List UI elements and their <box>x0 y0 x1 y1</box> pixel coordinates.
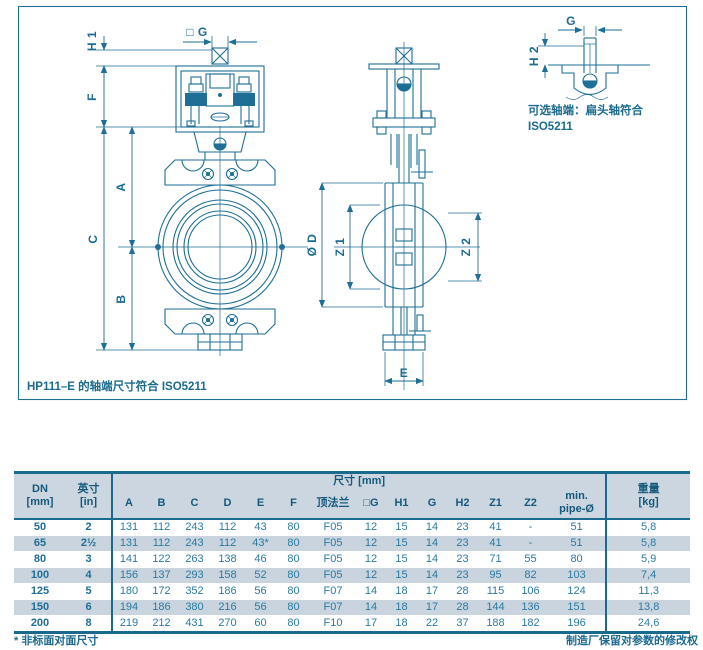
table-cell: F05 <box>310 535 356 551</box>
table-row: 10041561372931585280F051215142395821037,… <box>14 567 690 583</box>
table-cell: 158 <box>211 567 244 583</box>
table-cell: 24,6 <box>606 615 690 632</box>
table-cell: 124 <box>548 583 606 599</box>
table-cell: 293 <box>178 567 211 583</box>
column-header: H1 <box>386 489 417 518</box>
inset-note-line1: 可选轴端：扁头轴符合 <box>528 103 643 117</box>
footnote-right: 制造厂保留对参数的修改权 <box>566 632 698 648</box>
table-cell: - <box>513 535 548 551</box>
table-cell: 14 <box>356 599 386 615</box>
table-cell: 3 <box>66 551 112 567</box>
table-cell: 15 <box>386 567 417 583</box>
table-cell: 194 <box>112 599 145 615</box>
table-cell: 17 <box>417 599 447 615</box>
table-cell: 186 <box>211 583 244 599</box>
table-cell: 151 <box>548 599 606 615</box>
table-cell: F05 <box>310 551 356 567</box>
table-cell: F10 <box>310 615 356 632</box>
dim-label-z2: Z 2 <box>459 238 473 257</box>
table-cell: 12 <box>356 519 386 536</box>
table-cell: 188 <box>478 615 513 632</box>
table-cell: 182 <box>513 615 548 632</box>
table-cell: 115 <box>478 583 513 599</box>
table-cell: 2 <box>66 519 112 536</box>
column-header: D <box>211 489 244 518</box>
table-cell: 131 <box>112 519 145 536</box>
table-cell: 80 <box>277 599 310 615</box>
table-cell: F05 <box>310 519 356 536</box>
table-cell: 22 <box>417 615 447 632</box>
header-inch: 英寸 [in] <box>66 473 112 519</box>
table-cell: 80 <box>277 583 310 599</box>
table-cell: 12 <box>356 551 386 567</box>
column-header: 顶法兰 <box>310 489 356 518</box>
column-header: Z1 <box>478 489 513 518</box>
table-cell: 55 <box>513 551 548 567</box>
dim-label-h2: H 2 <box>527 46 541 66</box>
table-cell: 71 <box>478 551 513 567</box>
table-cell: 122 <box>145 551 178 567</box>
table-cell: 112 <box>145 535 178 551</box>
table-cell: 2½ <box>66 535 112 551</box>
table-cell: 17 <box>356 615 386 632</box>
table-cell: 82 <box>513 567 548 583</box>
table-cell: 37 <box>447 615 478 632</box>
table-cell: 180 <box>112 583 145 599</box>
dim-label-z1: Z 1 <box>333 238 347 257</box>
footnotes: * 非标面对面尺寸 制造厂保留对参数的修改权 <box>14 632 698 648</box>
table-cell: 186 <box>145 599 178 615</box>
dim-label-b: B <box>114 294 128 303</box>
column-header: F <box>277 489 310 518</box>
table-cell: 380 <box>178 599 211 615</box>
table-cell: 80 <box>277 567 310 583</box>
table-cell: 17 <box>417 583 447 599</box>
table-cell: 23 <box>447 535 478 551</box>
table-cell: 52 <box>244 567 277 583</box>
frame-note: HP111–E 的轴端尺寸符合 ISO5211 <box>27 379 207 393</box>
table-cell: 4 <box>66 567 112 583</box>
header-weight: 重量 [kg] <box>606 473 690 519</box>
bolt-icon <box>227 169 238 180</box>
table-cell: 56 <box>244 599 277 615</box>
footnote-left: * 非标面对面尺寸 <box>14 632 98 648</box>
table-cell: 18 <box>386 583 417 599</box>
bolt-icon <box>203 315 214 326</box>
table-cell: 144 <box>478 599 513 615</box>
table-cell: 270 <box>211 615 244 632</box>
shaft-end-inset: G H 2 可选轴端：扁头轴符合 ISO5211 <box>527 14 650 133</box>
table-row: 20082192124312706080F1017182237188182196… <box>14 615 690 632</box>
inset-note-line2: ISO5211 <box>528 121 573 133</box>
column-header: A <box>112 489 145 518</box>
table-cell: F07 <box>310 599 356 615</box>
table-cell: 14 <box>417 567 447 583</box>
table-cell: 23 <box>447 519 478 536</box>
table-cell: 50 <box>14 519 66 536</box>
table-cell: 141 <box>112 551 145 567</box>
table-cell: - <box>513 519 548 536</box>
table-cell: 219 <box>112 615 145 632</box>
screw-head-icon <box>583 74 597 88</box>
drawing-svg: H 1 F A C B □ G <box>0 0 703 466</box>
dim-label-dia-d: Ø D <box>305 234 319 257</box>
table-cell: 5,9 <box>606 551 690 567</box>
table-cell: 14 <box>417 519 447 536</box>
table-row: 652½13111224311243*80F051215142341-515,8 <box>14 535 690 551</box>
table-cell: 80 <box>14 551 66 567</box>
table-cell: 216 <box>211 599 244 615</box>
header-size-group: 尺寸 [mm] <box>112 473 606 490</box>
table-cell: 23 <box>447 567 478 583</box>
table-cell: 14 <box>356 583 386 599</box>
table-cell: F07 <box>310 583 356 599</box>
column-header: min. pipe-Ø <box>548 489 606 518</box>
table-cell: 212 <box>145 615 178 632</box>
column-header: G <box>417 489 447 518</box>
bolt-icon <box>227 315 238 326</box>
valve-technical-drawing: H 1 F A C B □ G <box>0 0 703 466</box>
table-cell: 263 <box>178 551 211 567</box>
column-header: □G <box>356 489 386 518</box>
table-cell: 138 <box>211 551 244 567</box>
table-cell: 8 <box>66 615 112 632</box>
column-header-row: ABCDEF顶法兰□GH1GH2Z1Z2min. pipe-Ø <box>14 489 690 518</box>
table-cell: 112 <box>211 519 244 536</box>
dim-label-g: G <box>566 14 576 28</box>
table-body: 5021311122431124380F051215142341-515,865… <box>14 519 690 633</box>
dim-label-square-g: □ G <box>186 25 207 39</box>
table-row: 15061941863802165680F0714181728144136151… <box>14 599 690 615</box>
table-cell: 80 <box>277 519 310 536</box>
table-cell: 60 <box>244 615 277 632</box>
side-view <box>334 42 480 390</box>
column-header: H2 <box>447 489 478 518</box>
table-cell: 15 <box>386 535 417 551</box>
table-cell: 136 <box>513 599 548 615</box>
bolt-icon <box>203 169 214 180</box>
table-row: 8031411222631384680F05121514237155805,9 <box>14 551 690 567</box>
table-cell: 14 <box>417 551 447 567</box>
table-cell: 28 <box>447 599 478 615</box>
table-cell: 5,8 <box>606 535 690 551</box>
table-cell: 41 <box>478 535 513 551</box>
table-cell: 14 <box>417 535 447 551</box>
table-cell: 5 <box>66 583 112 599</box>
table-cell: 80 <box>277 615 310 632</box>
table-cell: F05 <box>310 567 356 583</box>
dim-label-f: F <box>85 93 99 101</box>
table-cell: 243 <box>178 519 211 536</box>
dimension-table-section: DN [mm] 英寸 [in] 尺寸 [mm] 重量 [kg] ABCDEF顶法… <box>14 471 690 634</box>
table-cell: 28 <box>447 583 478 599</box>
table-cell: 18 <box>386 599 417 615</box>
table-cell: 95 <box>478 567 513 583</box>
table-cell: 43* <box>244 535 277 551</box>
table-cell: 11,3 <box>606 583 690 599</box>
table-cell: 15 <box>386 551 417 567</box>
table-row: 5021311122431124380F051215142341-515,8 <box>14 519 690 536</box>
table-cell: 352 <box>178 583 211 599</box>
table-cell: 137 <box>145 567 178 583</box>
table-cell: 15 <box>386 519 417 536</box>
table-cell: 106 <box>513 583 548 599</box>
column-header: Z2 <box>513 489 548 518</box>
table-cell: 156 <box>112 567 145 583</box>
table-cell: 13,8 <box>606 599 690 615</box>
table-cell: 80 <box>548 551 606 567</box>
dim-label-a: A <box>114 182 128 191</box>
table-cell: 46 <box>244 551 277 567</box>
table-row: 12551801723521865680F0714181728115106124… <box>14 583 690 599</box>
dim-label-e: E <box>400 366 409 380</box>
dimension-table: DN [mm] 英寸 [in] 尺寸 [mm] 重量 [kg] ABCDEF顶法… <box>14 471 690 634</box>
table-cell: 131 <box>112 535 145 551</box>
column-header: B <box>145 489 178 518</box>
table-cell: 23 <box>447 551 478 567</box>
column-header: C <box>178 489 211 518</box>
header-dn: DN [mm] <box>14 473 66 519</box>
table-cell: 112 <box>211 535 244 551</box>
table-cell: 12 <box>356 567 386 583</box>
column-header: E <box>244 489 277 518</box>
table-cell: 80 <box>277 535 310 551</box>
dim-label-h1: H 1 <box>85 31 99 51</box>
table-cell: 51 <box>548 535 606 551</box>
front-view <box>118 36 308 356</box>
table-cell: 12 <box>356 535 386 551</box>
table-cell: 243 <box>178 535 211 551</box>
table-cell: 5,8 <box>606 519 690 536</box>
table-cell: 43 <box>244 519 277 536</box>
table-cell: 56 <box>244 583 277 599</box>
table-cell: 18 <box>386 615 417 632</box>
table-cell: 6 <box>66 599 112 615</box>
table-cell: 7,4 <box>606 567 690 583</box>
table-cell: 150 <box>14 599 66 615</box>
table-cell: 125 <box>14 583 66 599</box>
table-cell: 196 <box>548 615 606 632</box>
table-cell: 200 <box>14 615 66 632</box>
table-cell: 103 <box>548 567 606 583</box>
table-cell: 431 <box>178 615 211 632</box>
table-cell: 65 <box>14 535 66 551</box>
table-cell: 100 <box>14 567 66 583</box>
table-cell: 112 <box>145 519 178 536</box>
table-cell: 172 <box>145 583 178 599</box>
dim-label-c: C <box>86 234 100 243</box>
table-cell: 51 <box>548 519 606 536</box>
table-cell: 41 <box>478 519 513 536</box>
table-cell: 80 <box>277 551 310 567</box>
